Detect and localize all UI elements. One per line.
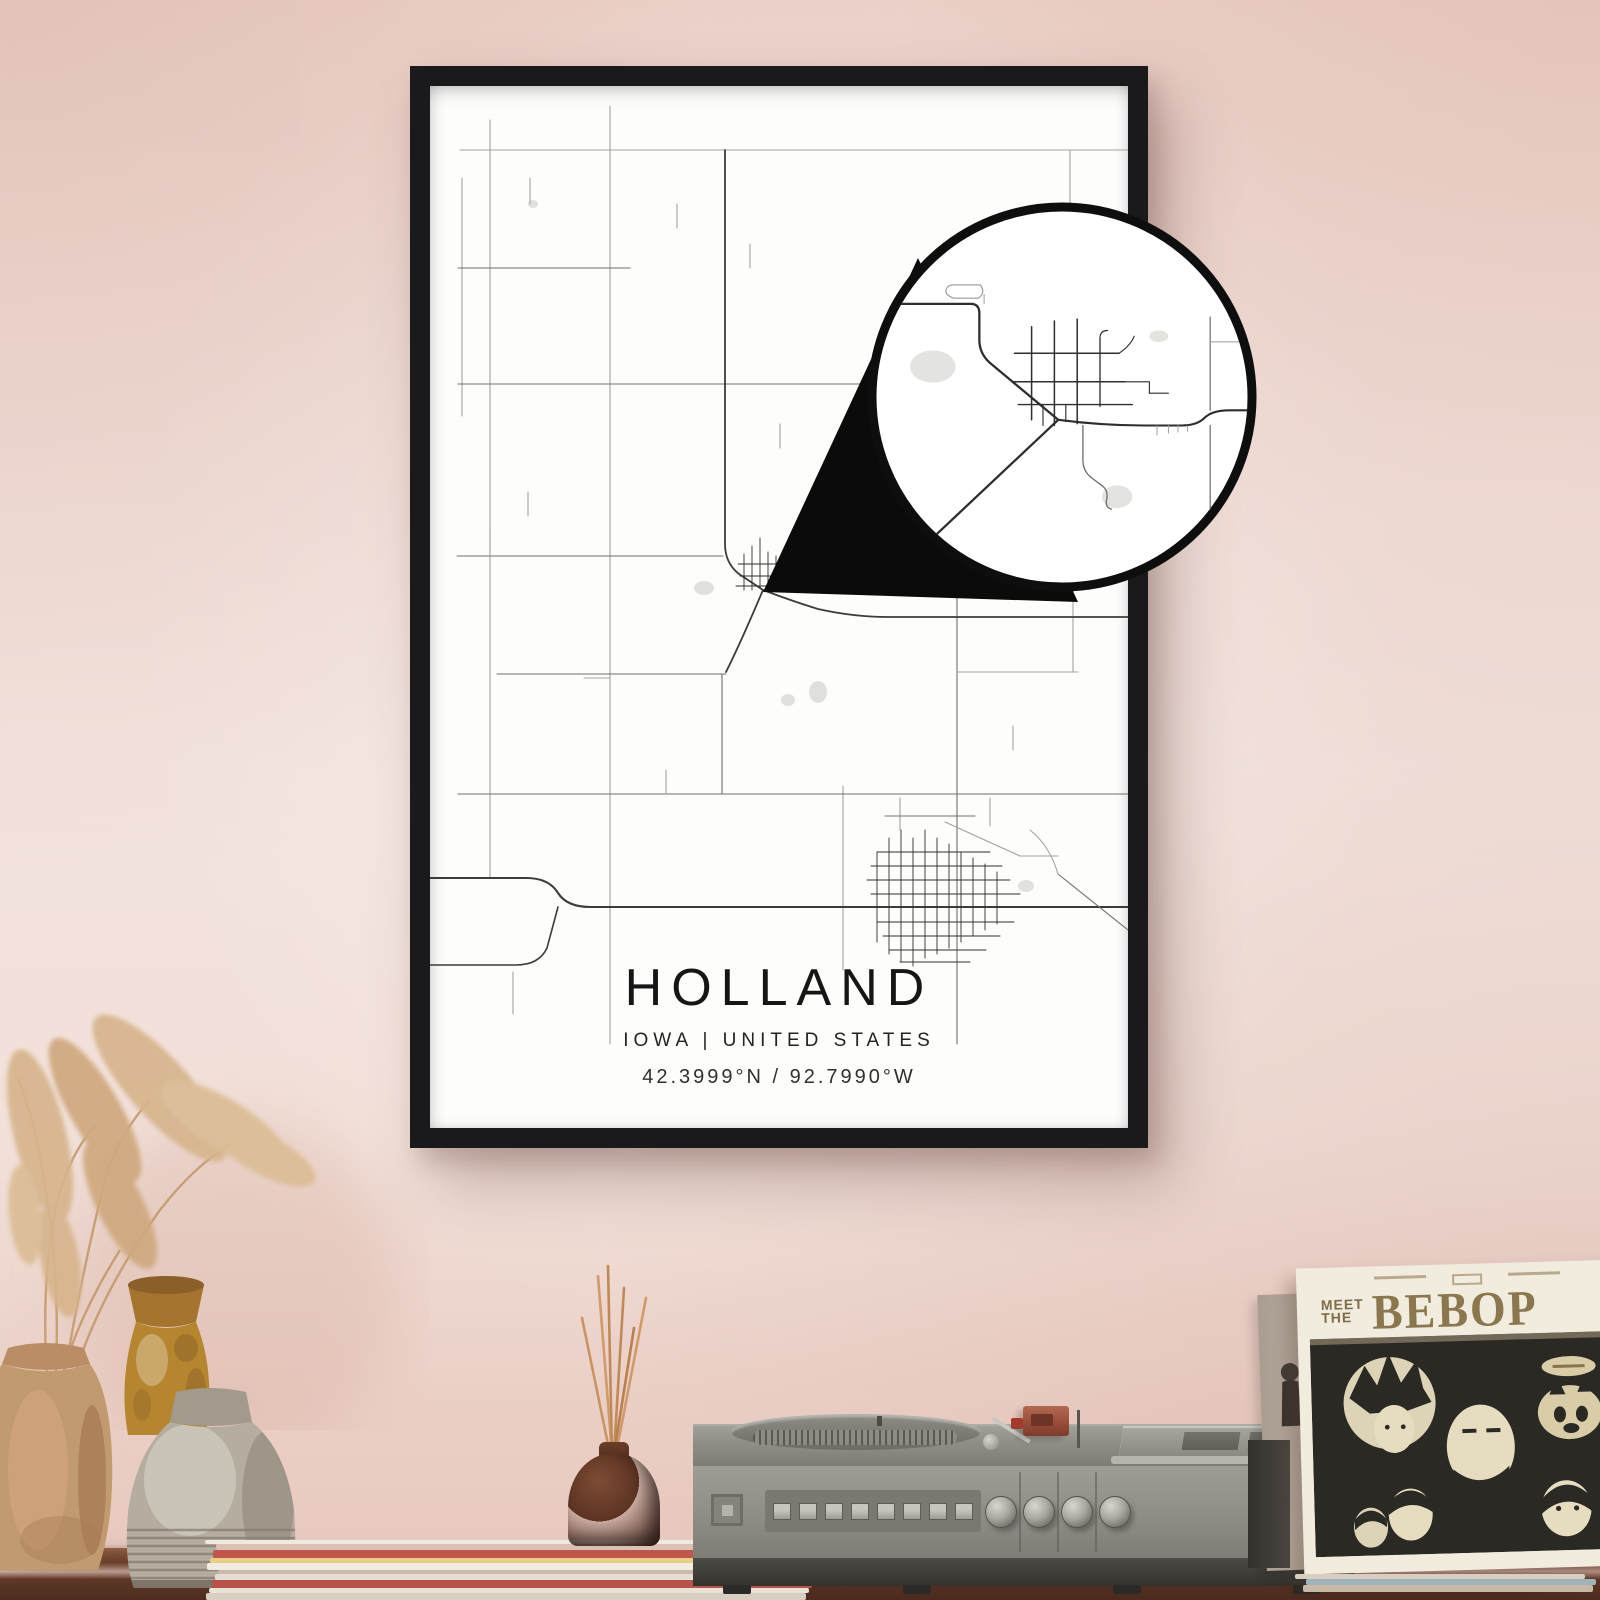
push-button xyxy=(799,1503,817,1520)
record-sleeve-bebop: MEET THE BEBOP xyxy=(1296,1259,1600,1574)
push-button xyxy=(929,1503,947,1520)
flat-record-pile xyxy=(1295,1566,1585,1592)
push-button xyxy=(851,1503,869,1520)
sleeve-artwork xyxy=(1310,1331,1600,1557)
stacked-item xyxy=(1303,1585,1593,1592)
power-button xyxy=(711,1494,743,1526)
lighter-red-part xyxy=(1011,1418,1023,1429)
control-knob xyxy=(985,1496,1017,1528)
sleeve-pretitle: MEET THE xyxy=(1321,1298,1365,1325)
scene: HOLLAND IOWA | UNITED STATES 42.3999°N /… xyxy=(0,0,1600,1600)
city-title: HOLLAND xyxy=(430,958,1128,1018)
panel-groove xyxy=(1019,1472,1021,1552)
turntable-platter xyxy=(731,1414,981,1450)
control-knob xyxy=(1099,1496,1131,1528)
sleeve-pretitle-line2: THE xyxy=(1321,1311,1364,1325)
diffuser-bottle xyxy=(568,1454,660,1546)
lighter-slot xyxy=(1031,1414,1053,1426)
reed-diffuser xyxy=(562,1428,666,1546)
push-button xyxy=(877,1503,895,1520)
poster-text-block: HOLLAND IOWA | UNITED STATES 42.3999°N /… xyxy=(430,958,1128,1089)
lid-window xyxy=(1182,1432,1241,1450)
control-knob xyxy=(1061,1496,1093,1528)
callout-circle xyxy=(872,207,1252,587)
dark-equipment-box xyxy=(1248,1440,1290,1568)
terracotta-vase xyxy=(0,1343,112,1570)
player-foot xyxy=(723,1585,751,1594)
push-button xyxy=(955,1503,973,1520)
push-button xyxy=(773,1503,791,1520)
record-sleeve-group: MEET THE BEBOP xyxy=(1248,1258,1600,1588)
panel-groove xyxy=(1057,1472,1059,1552)
antenna-pin xyxy=(1077,1410,1080,1448)
sleeve-title: BEBOP xyxy=(1371,1285,1538,1335)
player-foot xyxy=(903,1585,931,1594)
push-button xyxy=(903,1503,921,1520)
player-foot xyxy=(1113,1585,1141,1594)
spindle xyxy=(877,1416,882,1426)
stacked-item xyxy=(206,1593,806,1600)
lighter-on-deck xyxy=(1023,1406,1069,1436)
platter-rib-texture xyxy=(753,1430,957,1445)
control-knob xyxy=(1023,1496,1055,1528)
panel-groove xyxy=(1095,1472,1097,1552)
push-button xyxy=(825,1503,843,1520)
coordinates-text: 42.3999°N / 92.7990°W xyxy=(430,1066,1128,1089)
sleeve-title-row: MEET THE BEBOP xyxy=(1320,1284,1600,1335)
pushbutton-row xyxy=(765,1490,981,1532)
tonearm-pivot xyxy=(983,1434,999,1450)
knob-zone xyxy=(985,1466,1145,1558)
region-subtitle: IOWA | UNITED STATES xyxy=(430,1030,1128,1052)
incense-reeds xyxy=(562,1258,666,1458)
magnifier-callout xyxy=(700,150,1260,650)
